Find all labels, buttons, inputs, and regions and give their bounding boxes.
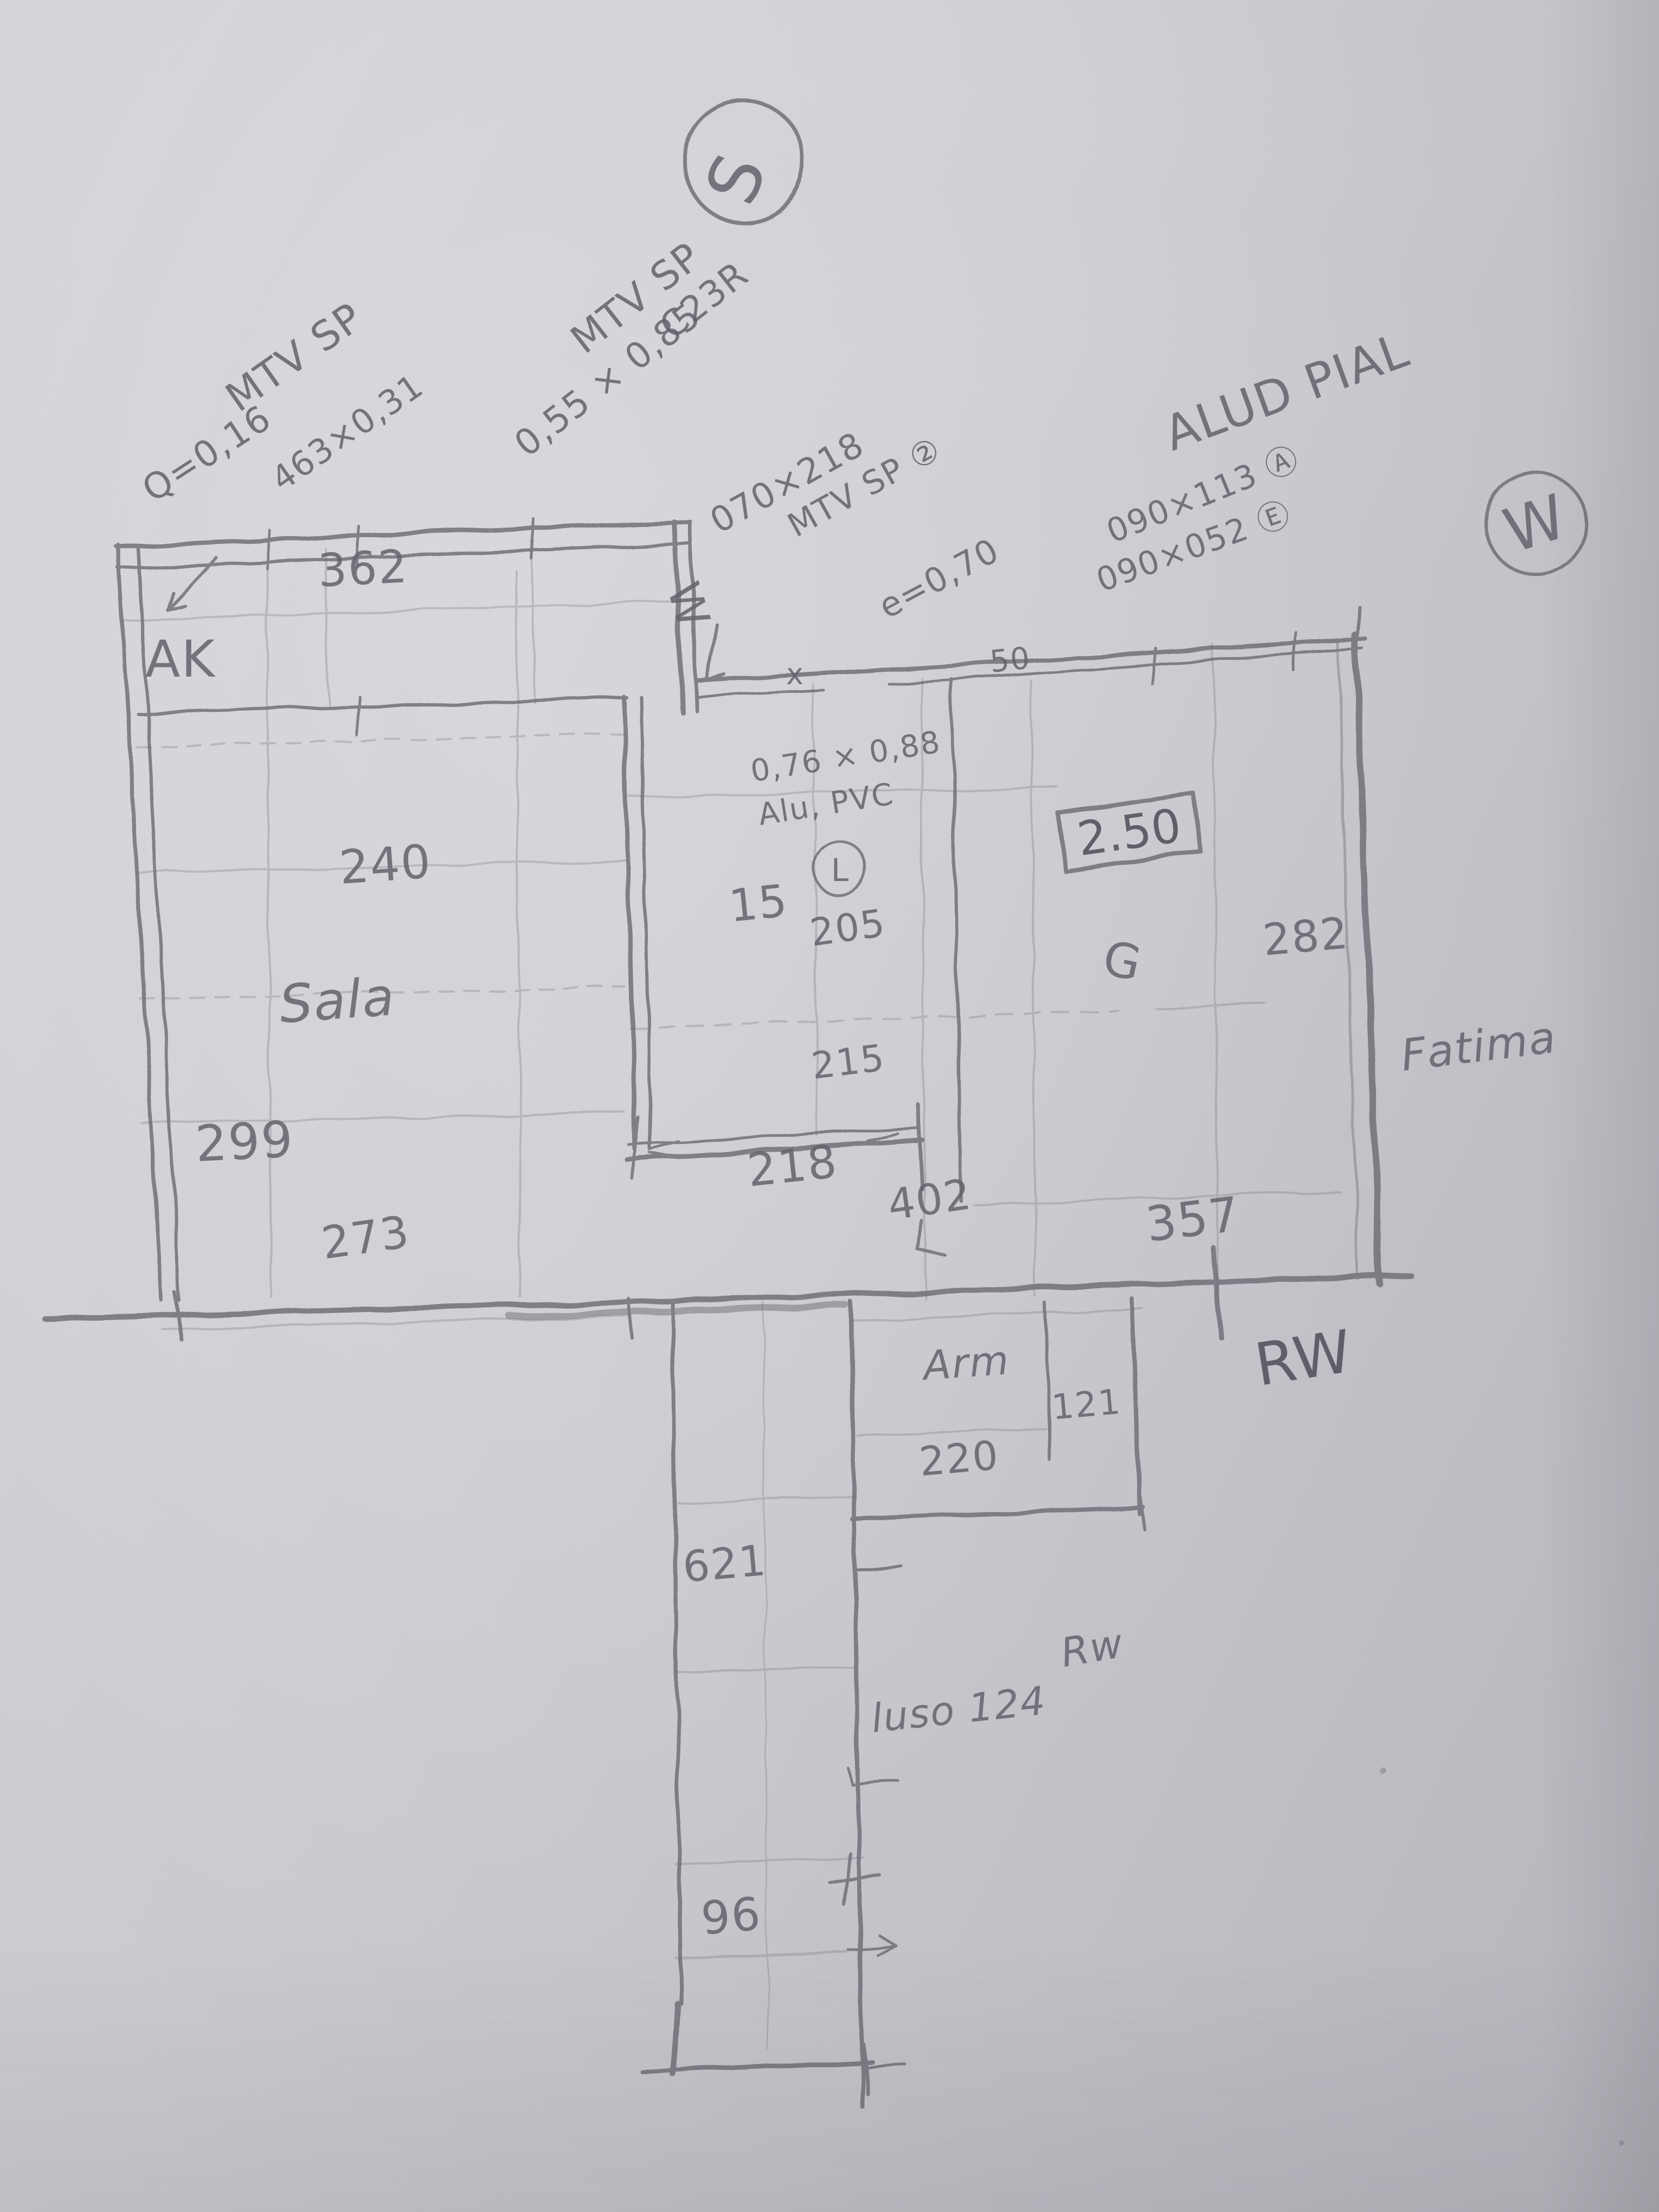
room-closet-label: Arm	[919, 1337, 1011, 1390]
wall-segment	[1338, 640, 1359, 1279]
dim-121: 121	[1050, 1382, 1123, 1428]
construction-line	[531, 541, 535, 703]
paper-speck	[1381, 1769, 1387, 1775]
window-w-mark: W	[657, 576, 719, 635]
floorplan-sketch: S W MTV SP 463×0,31 Q=0,16 MTV SP 0,55 ×…	[0, 0, 1659, 2212]
arrow-mark	[849, 1934, 896, 1955]
wall-segment	[852, 1507, 1143, 1519]
construction-line	[858, 1429, 1046, 1436]
note-mtv-left-line1: MTV SP	[217, 294, 371, 421]
dim-tick	[1294, 633, 1297, 670]
dim-tick	[858, 1566, 901, 1570]
dim-tick	[629, 1299, 633, 1339]
dim-402: 402	[885, 1170, 975, 1230]
room-sala-label: Sala	[278, 966, 397, 1035]
dim-96: 96	[699, 1887, 763, 1945]
dim-621: 621	[681, 1536, 769, 1592]
note-door-mid-e: e=0,70	[872, 530, 1006, 626]
construction-lines	[125, 541, 1339, 2049]
wall-segment	[851, 1302, 862, 2106]
construction-line	[679, 1496, 856, 1503]
construction-line	[137, 733, 628, 747]
room-ak-label: AK	[145, 630, 216, 689]
paper-speck	[1618, 2140, 1624, 2145]
dim-tick	[707, 625, 717, 681]
window-badge-letter: L	[831, 852, 850, 889]
construction-line	[1031, 681, 1036, 1297]
wall-segment	[1132, 1299, 1140, 1514]
construction-line	[676, 1857, 863, 1864]
room-fatima-label: Fatima	[1398, 1012, 1559, 1081]
construction-line	[163, 1316, 629, 1329]
wall-segment	[510, 1306, 846, 1316]
wall-mark-x: x	[786, 657, 805, 691]
construction-line	[1156, 1004, 1266, 1008]
construction-line	[763, 1302, 768, 2049]
wall-segment	[1355, 635, 1380, 1284]
construction-line	[125, 601, 675, 621]
dim-tick	[356, 696, 359, 734]
wall-segment	[1045, 1303, 1051, 1461]
t-mark	[828, 1853, 880, 1904]
dim-205: 205	[807, 901, 889, 955]
dim-tick	[863, 2063, 904, 2067]
wall-segment	[137, 697, 626, 713]
construction-line	[630, 1011, 1118, 1028]
wall-segment	[672, 1302, 681, 2003]
dim-218: 218	[745, 1135, 840, 1197]
construction-line	[851, 1309, 1143, 1321]
dim-357: 357	[1143, 1186, 1243, 1252]
g-mark: G	[1098, 930, 1147, 992]
construction-line	[516, 570, 520, 1297]
dim-215: 215	[809, 1037, 887, 1088]
wall-segment	[673, 2003, 678, 2074]
wall-segment	[951, 679, 961, 1201]
dim-273: 273	[319, 1206, 413, 1270]
construction-line	[267, 570, 271, 1297]
leader-lower-label: luso 124	[869, 1678, 1049, 1741]
dim-282: 282	[1261, 908, 1351, 965]
dim-240: 240	[337, 834, 433, 895]
dim-362: 362	[317, 539, 409, 597]
dim-tick	[917, 1104, 922, 1188]
compass-west-label: W	[1496, 481, 1576, 567]
note-window-size: 0,76 × 0,88	[748, 724, 943, 789]
note-mtv-left-line3: Q=0,16	[135, 397, 279, 511]
construction-line	[679, 1668, 858, 1673]
wall-mark-fifty: 50	[988, 640, 1033, 680]
dim-15: 15	[726, 875, 790, 933]
rw-lower-label: Rw	[1057, 1620, 1127, 1677]
dim-299: 299	[194, 1110, 295, 1173]
wall-segment	[632, 1275, 1411, 1302]
wall-segment	[623, 697, 635, 1149]
wall-segment	[697, 691, 824, 697]
construction-line	[677, 1953, 847, 1958]
dim-220: 220	[917, 1432, 1001, 1486]
dim-tick	[531, 519, 534, 558]
rw-right-label: RW	[1251, 1317, 1356, 1399]
wall-segment	[641, 697, 651, 1148]
